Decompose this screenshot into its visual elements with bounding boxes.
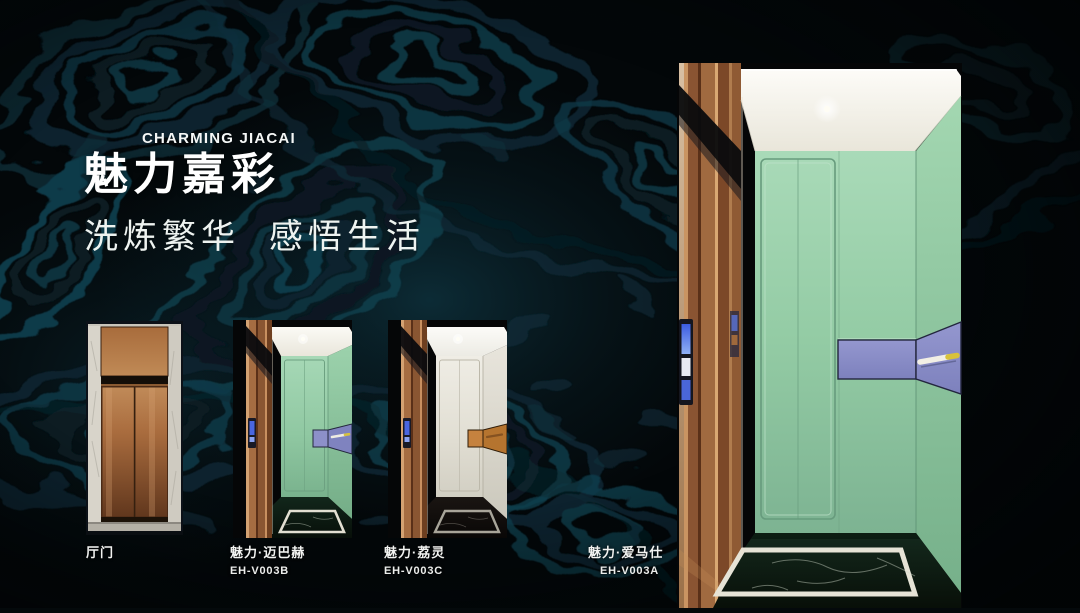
copper-hall-door-rendering [86,321,183,535]
product-model: EH-V003A [600,565,663,577]
series-eyebrow: CHARMING JIACAI [142,130,425,147]
label-cab-v003b: 魅力·迈巴赫 EH-V003B [230,542,305,577]
product-name: 魅力·迈巴赫 [230,542,305,561]
product-model: EH-V003B [230,565,305,577]
large-mint-cab-rendering [677,63,962,608]
thumbnail-hall-door [86,321,183,535]
product-name: 魅力·荔灵 [384,542,445,561]
product-model: EH-V003C [384,565,445,577]
title-block: CHARMING JIACAI 魅力嘉彩 洗炼繁华 感悟生活 [84,130,425,258]
label-cab-v003a: 魅力·爱马仕 EH-V003A [588,542,663,577]
label-hall-door: 厅门 [86,542,114,561]
product-name: 魅力·爱马仕 [588,542,663,561]
thumbnail-cab-v003c [388,320,507,538]
white-cab-rendering [388,320,507,538]
thumbnail-cab-v003b [233,320,352,538]
product-name: 厅门 [86,542,114,561]
page-subtitle: 洗炼繁华 感悟生活 [84,209,425,258]
label-cab-v003c: 魅力·荔灵 EH-V003C [384,542,445,577]
page-title: 魅力嘉彩 [84,152,425,198]
hero-cab-v003a [677,63,962,608]
mint-cab-rendering [233,320,352,538]
